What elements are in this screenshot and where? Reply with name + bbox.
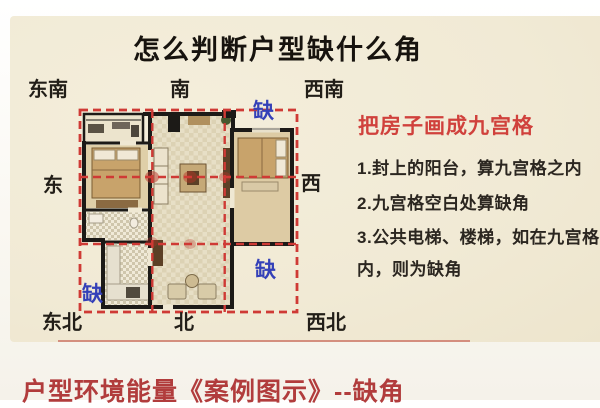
dining-table-icon [186, 275, 199, 288]
compass-label-east: 东 [43, 173, 63, 197]
panel-rule-1: 1.封上的阳台，算九宫格之内 [357, 154, 587, 179]
compass-label-northeast: 东北 [42, 310, 82, 334]
page-title: 怎么判断户型缺什么角 [0, 28, 556, 67]
shaft-icon [168, 112, 180, 132]
compass-label-northwest: 西北 [306, 311, 346, 334]
compass-label-southeast: 东南 [28, 77, 68, 101]
console-table-icon [188, 116, 210, 125]
panel-heading: 把房子画成九宫格 [358, 110, 534, 140]
compass-label-north: 北 [174, 311, 194, 334]
chair-icon [198, 284, 216, 299]
missing-label-bottom-left: 缺 [82, 282, 104, 306]
sink-icon [89, 214, 103, 223]
stove-icon [126, 287, 140, 298]
compass-label-west: 西 [301, 173, 321, 195]
footer-caption: 户型环境能量《案例图示》--缺角 [22, 372, 405, 408]
toilet-icon [130, 218, 138, 228]
missing-label-top-right: 缺 [253, 99, 275, 123]
balcony-shelf-icon [112, 122, 130, 129]
compass-label-south: 南 [170, 78, 190, 101]
panel-rule-3: 3.公共电梯、楼梯，如在九宫格 [357, 223, 587, 248]
kitchen-counter-icon [107, 246, 120, 290]
panel-rule-2: 2.九宫格空白处算缺角 [357, 189, 587, 214]
red-divider-line [58, 340, 470, 342]
balcony-cabinet-icon [131, 125, 139, 137]
balcony-desk-icon [88, 124, 104, 133]
bench-icon [242, 182, 278, 191]
dresser-icon [96, 200, 138, 208]
chair-icon [168, 284, 186, 299]
floorplan-svg: 缺 缺 缺 东南 南 西南 东 西 东北 北 西北 [0, 70, 360, 350]
panel-rule-3-continued: 内，则为缺角 [357, 255, 587, 280]
compass-label-southwest: 西南 [304, 78, 344, 101]
missing-label-bottom-right: 缺 [255, 258, 277, 282]
